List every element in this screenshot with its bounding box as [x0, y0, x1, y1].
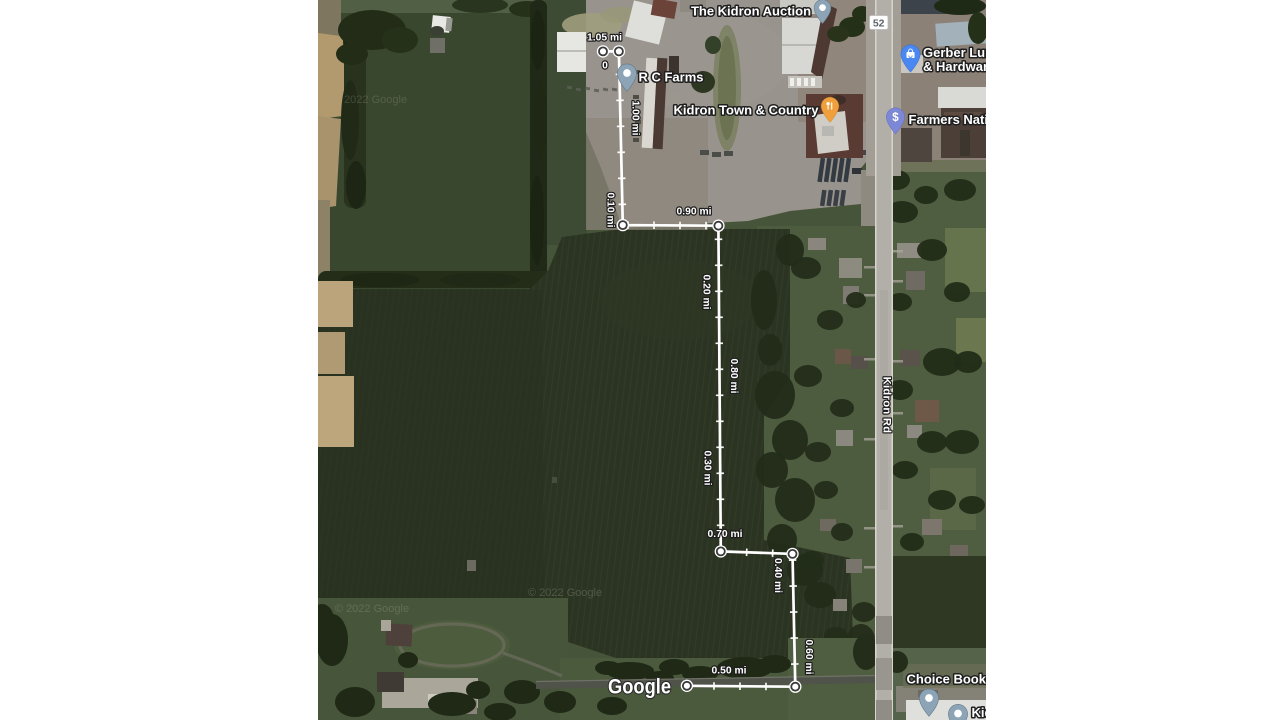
svg-text:© 2022 Google: © 2022 Google [335, 603, 409, 615]
svg-text:0: 0 [602, 61, 608, 72]
svg-text:52: 52 [873, 17, 885, 29]
svg-text:Kidron Rd: Kidron Rd [881, 377, 893, 434]
svg-text:The Kidron Auction: The Kidron Auction [691, 4, 811, 19]
svg-text:0.60 mi: 0.60 mi [803, 640, 814, 675]
svg-text:0.80 mi: 0.80 mi [728, 359, 739, 394]
svg-text:1.00 mi: 1.00 mi [629, 101, 640, 136]
svg-text:© 2022 Google: © 2022 Google [528, 587, 602, 599]
svg-text:R C Farms: R C Farms [638, 70, 703, 85]
svg-text:Google: Google [608, 675, 671, 699]
svg-text:Gerber Lum: Gerber Lum [923, 45, 997, 60]
svg-text:0.40 mi: 0.40 mi [772, 558, 783, 593]
svg-text:0.30 mi: 0.30 mi [701, 451, 712, 486]
svg-text:© 2022 Google: © 2022 Google [333, 94, 407, 106]
svg-text:1.05 mi: 1.05 mi [587, 33, 622, 44]
svg-text:0.20 mi: 0.20 mi [700, 275, 711, 310]
svg-text:0.10 mi: 0.10 mi [604, 193, 615, 228]
svg-text:0.70 mi: 0.70 mi [708, 529, 743, 540]
svg-text:0.50 mi: 0.50 mi [712, 666, 747, 677]
svg-text:$: $ [892, 112, 899, 124]
svg-text:Choice Books: Choice Books [907, 672, 994, 687]
svg-text:Kidron Town & Country: Kidron Town & Country [674, 103, 820, 118]
svg-text:0.90 mi: 0.90 mi [677, 207, 712, 218]
svg-text:& Hardware: & Hardware [923, 59, 995, 74]
